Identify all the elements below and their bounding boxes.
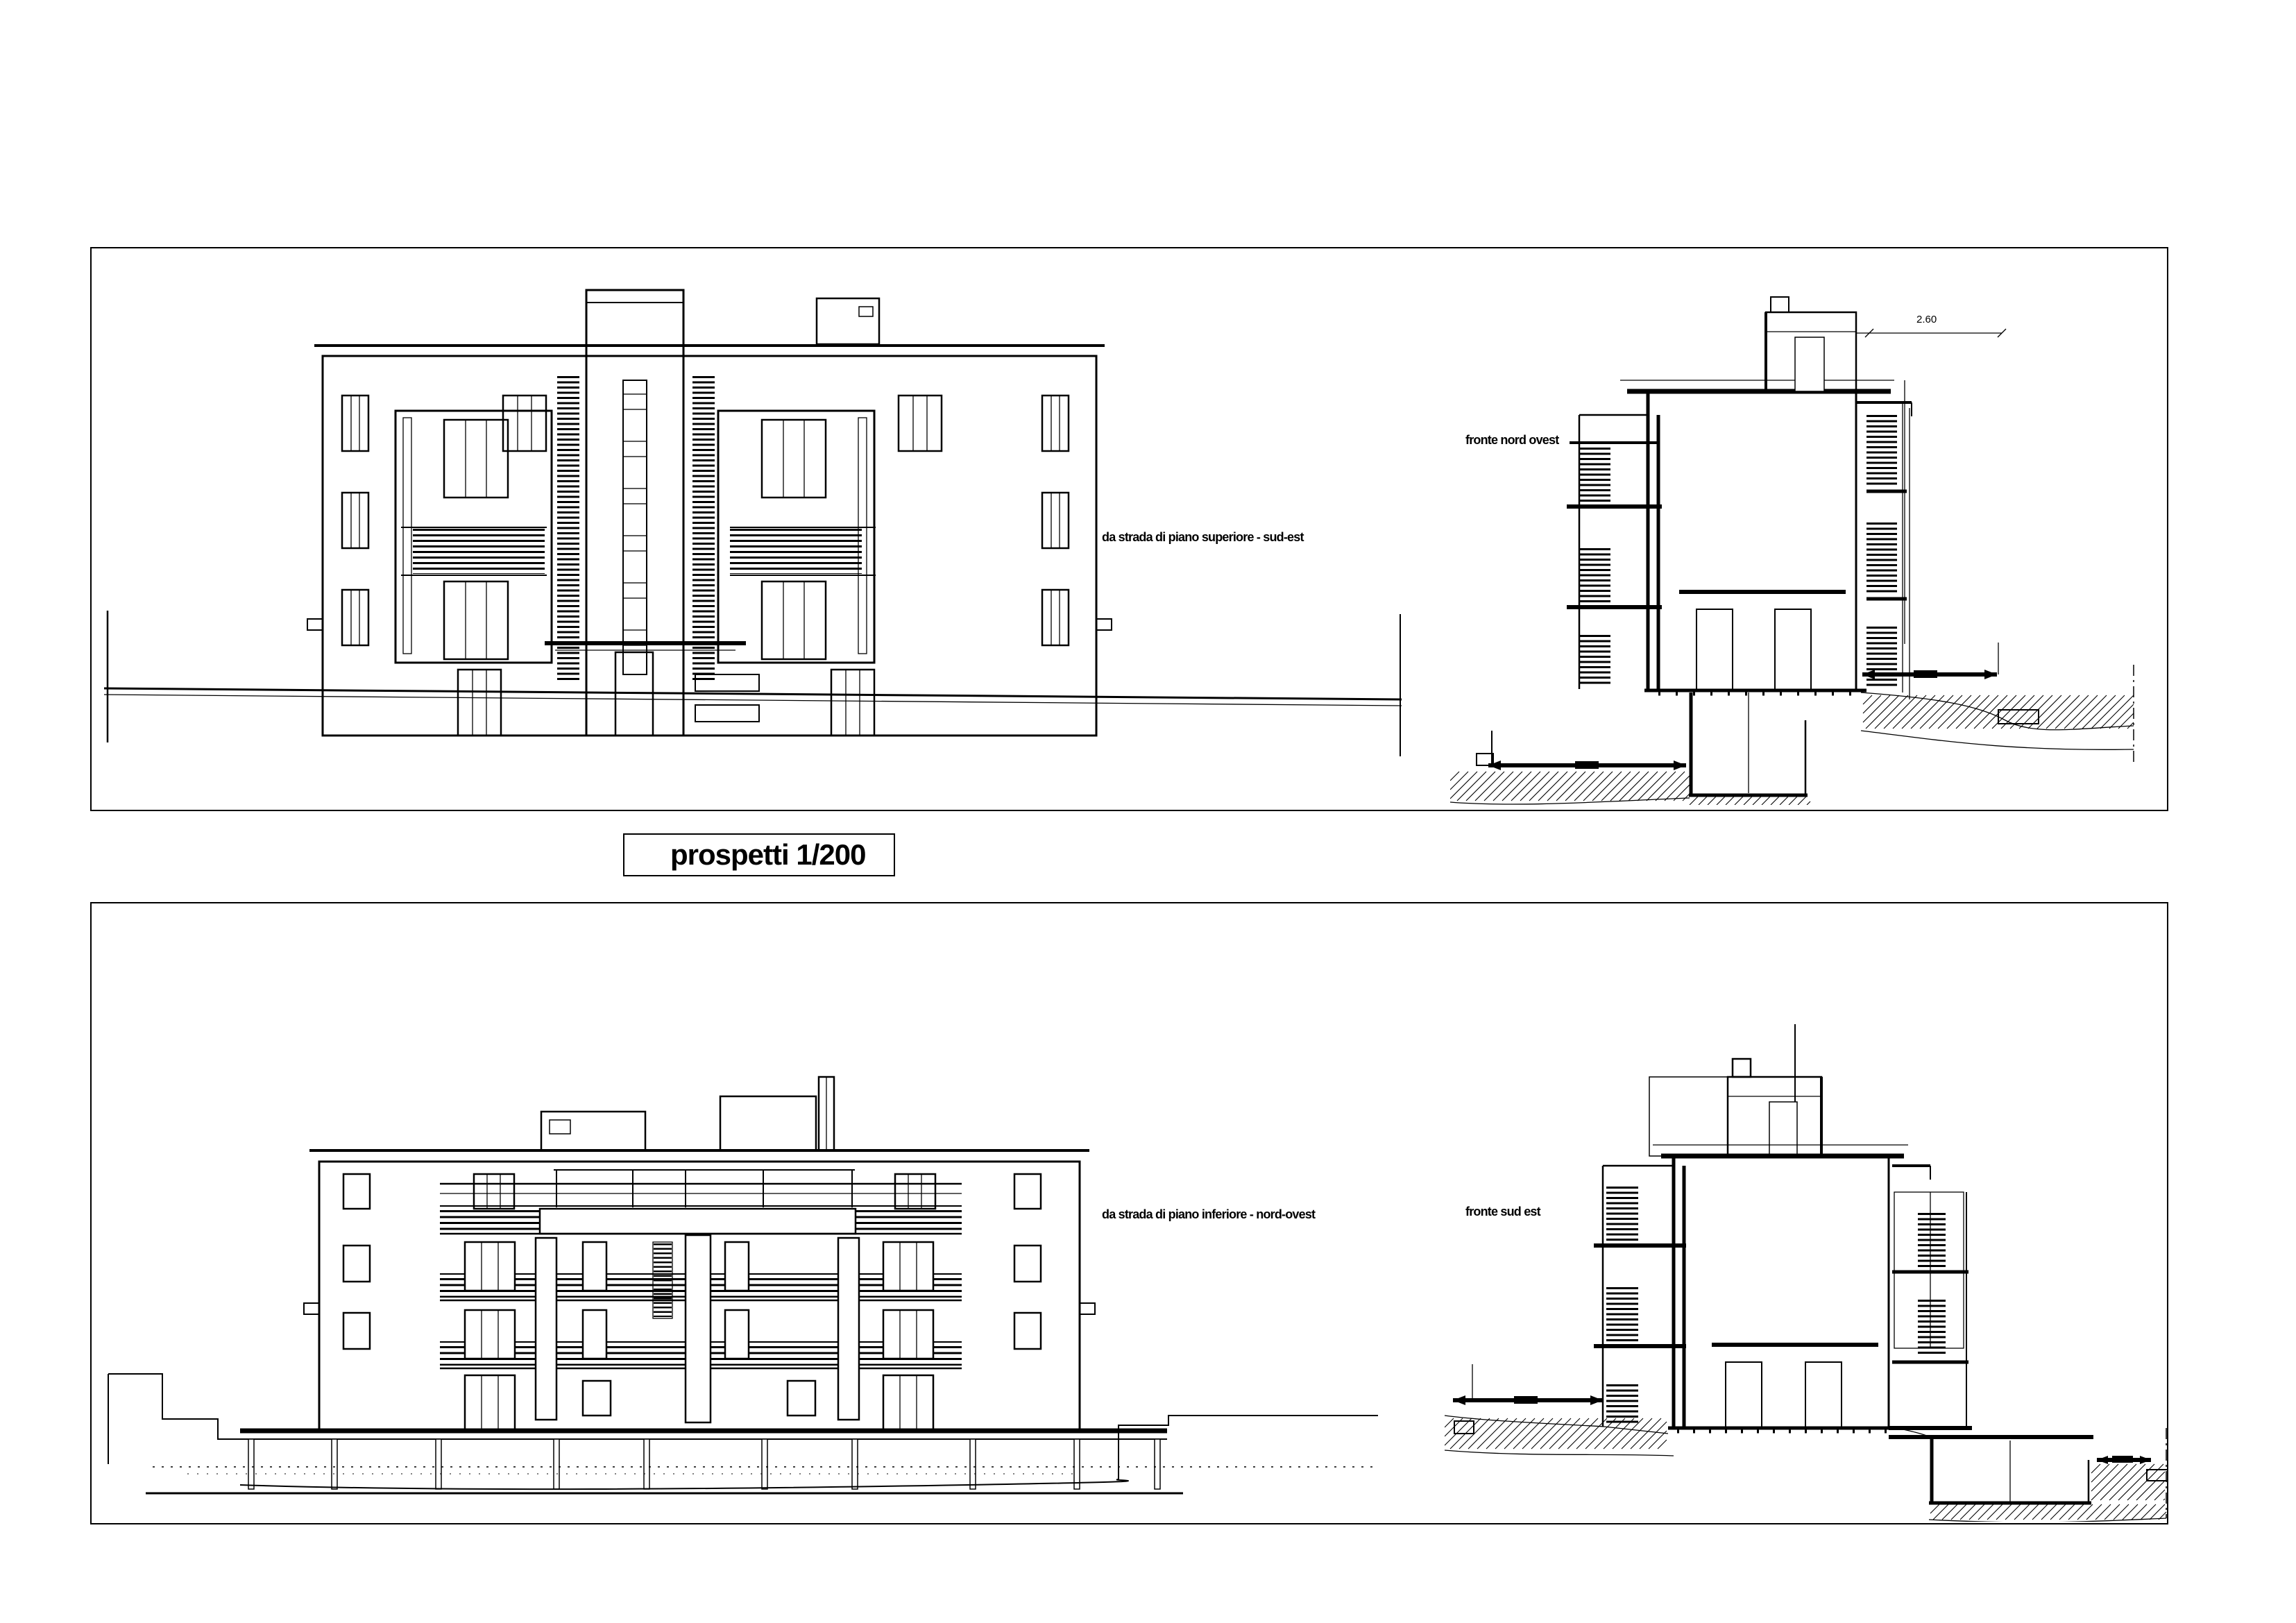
bottom-section-caption: fronte sud est — [1465, 1205, 1540, 1219]
terrain-hatch — [1445, 1418, 1667, 1449]
bottom-elevation-caption: da strada di piano inferiore - nord-oves… — [1102, 1207, 1315, 1222]
top-elevation-caption: da strada di piano superiore - sud-est — [1102, 530, 1304, 545]
top-elevation-drawing — [97, 264, 1415, 756]
terrain-hatch — [1930, 1504, 2166, 1520]
bottom-section-drawing — [1445, 984, 2173, 1522]
pilasters — [304, 1235, 1095, 1422]
attic-row — [343, 1170, 1041, 1209]
terrain-right-street — [1889, 1428, 2168, 1522]
roof-dimension-label: 2.60 — [1916, 314, 1937, 325]
drawing-sheet: prospetti 1/200 — [0, 0, 2296, 1623]
right-balconies — [1889, 1192, 1972, 1428]
top-section-drawing — [1450, 276, 2172, 805]
top-section-caption: fronte nord ovest — [1465, 433, 1558, 448]
title-box: prospetti 1/200 — [623, 833, 895, 876]
section-body — [1648, 392, 1856, 690]
terrain-left-street — [1450, 692, 1810, 805]
terrain-hatch — [1690, 797, 1810, 805]
terrain-left-street — [1445, 1364, 1897, 1456]
terrain-right — [1644, 643, 2134, 762]
elevation-terrain — [108, 1374, 1378, 1493]
right-facade-strips — [1866, 401, 1910, 699]
left-wing — [307, 396, 552, 736]
terrain-hatch — [1450, 772, 1690, 801]
portico — [240, 1431, 1167, 1489]
bottom-elevation-drawing — [104, 930, 1381, 1523]
section-body — [1674, 1156, 1889, 1428]
sheet-title: prospetti 1/200 — [670, 838, 865, 872]
right-wing — [718, 396, 1112, 736]
